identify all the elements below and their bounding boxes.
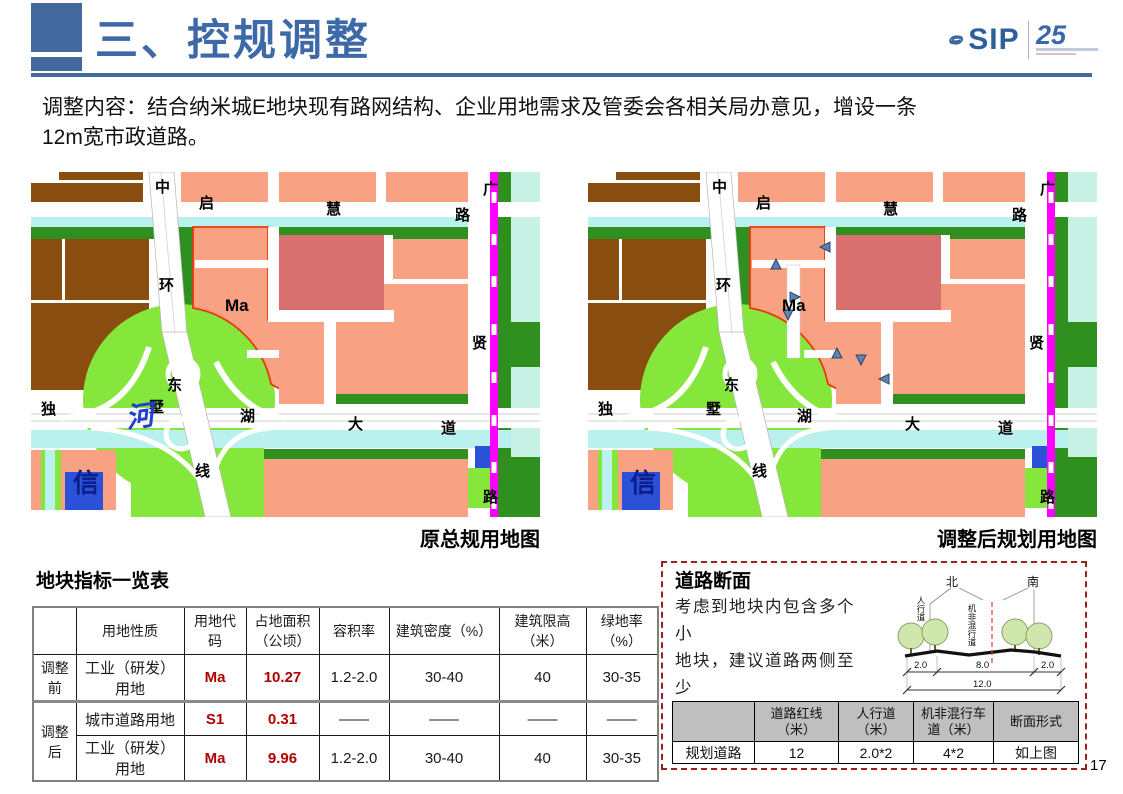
rs-header-blank	[673, 702, 755, 742]
cell-green: 30-35	[586, 736, 658, 782]
cell-code: Ma	[184, 736, 246, 782]
map-label: 启	[756, 196, 771, 212]
intro-line-2: 12m宽市政道路。	[42, 123, 1092, 153]
map-label: 独	[41, 402, 56, 418]
map-label: 贤	[1029, 336, 1044, 352]
dim-center: 8.0	[976, 660, 989, 671]
note-line-2: 地块，建议道路两侧至少	[675, 647, 865, 701]
cell-stage: 调整后	[33, 702, 76, 782]
rs-cell-mixed-lane: 4*2	[914, 742, 994, 764]
sip-swoosh-icon	[948, 18, 964, 62]
caption-adjusted-map: 调整后规划用地图	[588, 523, 1097, 552]
indicator-table-title: 地块指标一览表	[36, 566, 169, 593]
cell-height: 40	[499, 655, 586, 702]
map-label: 路	[1040, 490, 1055, 506]
logo-small-print	[1036, 48, 1098, 51]
map-label: 东	[724, 378, 739, 394]
rs-header-redline: 道路红线（米）	[755, 702, 839, 742]
sip-logo: SIP 25	[948, 14, 1098, 66]
cell-use: 城市道路用地	[76, 702, 184, 736]
cell-area: 9.96	[246, 736, 319, 782]
rs-cell-section-form: 如上图	[994, 742, 1079, 764]
header-green-rate: 绿地率（%）	[586, 607, 658, 655]
rs-cell-name: 规划道路	[673, 742, 755, 764]
indicator-header-row: 用地性质 用地代码 占地面积（公顷） 容积率 建筑密度（%） 建筑限高（米） 绿…	[33, 607, 658, 655]
cell-height: 40	[499, 736, 586, 782]
map-label: 大	[905, 417, 920, 433]
row-after-industrial: 工业（研发）用地 Ma 9.96 1.2-2.0 30-40 40 30-35	[33, 736, 658, 782]
map-label: 东	[167, 378, 182, 394]
map-label: 墅	[706, 402, 721, 418]
north-label: 北	[946, 575, 958, 589]
map-label: 环	[159, 278, 174, 294]
map-label: 湖	[797, 409, 812, 425]
cell-density: ——	[389, 702, 499, 736]
cell-density: 30-40	[389, 736, 499, 782]
dim-total: 12.0	[973, 679, 992, 690]
header-far: 容积率	[319, 607, 389, 655]
cell-height: ——	[499, 702, 586, 736]
cell-area: 10.27	[246, 655, 319, 702]
map-label: 慧	[883, 202, 898, 218]
cell-use: 工业（研发）用地	[76, 736, 184, 782]
map-label: 独	[598, 402, 613, 418]
intro-line-1: 调整内容：结合纳米城E地块现有路网结构、企业用地需求及管委会各相关局办意见，增设…	[42, 93, 1092, 123]
landuse-map-original: 中启慧路广环Ma贤独东墅河湖大道线路信	[31, 172, 540, 517]
cell-far: ——	[319, 702, 389, 736]
header-area: 占地面积（公顷）	[246, 607, 319, 655]
header-land-use: 用地性质	[76, 607, 184, 655]
road-table-header-row: 道路红线（米） 人行道（米） 机非混行车道（米） 断面形式	[673, 702, 1079, 742]
map-label: 湖	[240, 409, 255, 425]
map-label: 信	[73, 475, 99, 491]
road-section-title: 道路断面	[675, 566, 751, 593]
row-before: 调整前 工业（研发）用地 Ma 10.27 1.2-2.0 30-40 40 3…	[33, 655, 658, 702]
title-decoration-square	[31, 3, 82, 52]
rs-header-sidewalk: 人行道（米）	[839, 702, 914, 742]
row-after-road: 调整后 城市道路用地 S1 0.31 —— —— —— ——	[33, 702, 658, 736]
map-label: 线	[195, 464, 210, 480]
header-height-limit: 建筑限高（米）	[499, 607, 586, 655]
logo-small-print-2	[1036, 53, 1076, 55]
map-label: 中	[712, 180, 727, 196]
mixed-lane-label: 机非混行道	[967, 603, 977, 647]
map-label: 路	[455, 208, 470, 224]
road-cross-section-diagram: 北 南 人行道 机非混行道 2.0 8.0 2.0 12.0	[855, 566, 1083, 700]
rs-header-section-form: 断面形式	[994, 702, 1079, 742]
intro-paragraph: 调整内容：结合纳米城E地块现有路网结构、企业用地需求及管委会各相关局办意见，增设…	[42, 93, 1092, 153]
cell-far: 1.2-2.0	[319, 736, 389, 782]
header-land-code: 用地代码	[184, 607, 246, 655]
map-label: 环	[716, 278, 731, 294]
cell-density: 30-40	[389, 655, 499, 702]
rs-cell-redline: 12	[755, 742, 839, 764]
header-blank	[33, 607, 76, 655]
map-label: 河	[125, 408, 155, 428]
slide: 三、控规调整 SIP 25 调整内容：结合纳米城E地块现有路网结构、企业用地需求…	[0, 0, 1123, 794]
map-label: 道	[441, 421, 456, 437]
title-decoration-bar	[31, 57, 82, 71]
dim-right: 2.0	[1041, 660, 1054, 671]
header-density: 建筑密度（%）	[389, 607, 499, 655]
road-table-data-row: 规划道路 12 2.0*2 4*2 如上图	[673, 742, 1079, 764]
map-label: 路	[483, 490, 498, 506]
cell-stage: 调整前	[33, 655, 76, 702]
road-section-box: 道路断面 考虑到地块内包含多个小 地块，建议道路两侧至少 各留2m的人行道	[661, 561, 1087, 770]
south-label: 南	[1027, 574, 1039, 589]
landuse-map-adjusted: 中启慧路广环Ma贤独东墅湖大道线路信	[588, 172, 1097, 517]
cell-green: 30-35	[586, 655, 658, 702]
map-label: 中	[155, 180, 170, 196]
caption-original-map: 原总规用地图	[31, 523, 540, 552]
rs-header-mixed-lane: 机非混行车道（米）	[914, 702, 994, 742]
map-label: 广	[483, 182, 498, 198]
cell-area: 0.31	[246, 702, 319, 736]
map-label: 贤	[472, 336, 487, 352]
road-parameters-table: 道路红线（米） 人行道（米） 机非混行车道（米） 断面形式 规划道路 12 2.…	[672, 701, 1079, 764]
map-label: 路	[1012, 208, 1027, 224]
map-label: 大	[348, 417, 363, 433]
rs-cell-sidewalk: 2.0*2	[839, 742, 914, 764]
sidewalk-label: 人行道	[916, 596, 926, 622]
title-rule	[31, 73, 1092, 77]
sip-logo-text: SIP	[968, 23, 1019, 57]
note-line-1: 考虑到地块内包含多个小	[675, 593, 865, 647]
dim-left: 2.0	[914, 660, 927, 671]
page-number: 17	[1090, 757, 1107, 774]
map-label: 线	[752, 464, 767, 480]
map-label: Ma	[225, 298, 249, 314]
map-label: 信	[630, 475, 656, 491]
indicator-table: 用地性质 用地代码 占地面积（公顷） 容积率 建筑密度（%） 建筑限高（米） 绿…	[32, 606, 659, 782]
cell-use: 工业（研发）用地	[76, 655, 184, 702]
page-title: 三、控规调整	[95, 6, 371, 68]
anniversary-25-mark: 25	[1036, 25, 1066, 45]
map-label: 道	[998, 421, 1013, 437]
map-label: 慧	[326, 202, 341, 218]
map-label: 广	[1040, 182, 1055, 198]
map-label: Ma	[782, 298, 806, 314]
cell-code: S1	[184, 702, 246, 736]
map-label: 启	[199, 196, 214, 212]
cell-far: 1.2-2.0	[319, 655, 389, 702]
cell-code: Ma	[184, 655, 246, 702]
cell-green: ——	[586, 702, 658, 736]
